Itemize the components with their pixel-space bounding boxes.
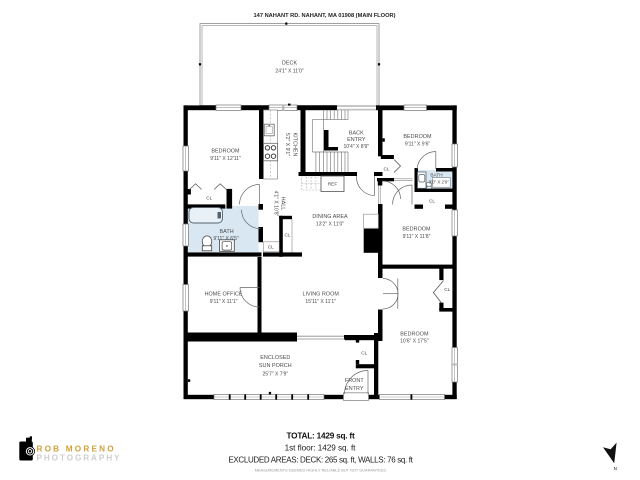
- svg-text:3'0" X 2'9": 3'0" X 2'9": [429, 180, 449, 185]
- svg-text:TOTAL: 1429 sq. ft: TOTAL: 1429 sq. ft: [287, 432, 355, 441]
- svg-text:REF: REF: [328, 182, 338, 188]
- svg-text:BACK: BACK: [349, 130, 364, 136]
- svg-text:9'11" X 12'11": 9'11" X 12'11": [210, 156, 241, 162]
- svg-text:ENCLOSED: ENCLOSED: [260, 355, 290, 361]
- svg-text:CL: CL: [429, 199, 435, 204]
- svg-text:LIVING ROOM: LIVING ROOM: [302, 292, 339, 298]
- svg-text:KITCHEN: KITCHEN: [292, 132, 298, 156]
- svg-text:BATH: BATH: [220, 229, 234, 235]
- svg-text:9'11" X 9'6": 9'11" X 9'6": [405, 141, 431, 147]
- svg-text:HALL: HALL: [280, 197, 286, 211]
- svg-text:BEDROOM: BEDROOM: [400, 331, 429, 337]
- svg-text:9'11" X 6'5": 9'11" X 6'5": [213, 236, 239, 242]
- svg-text:PHOTOGRAPHY: PHOTOGRAPHY: [37, 454, 122, 463]
- svg-text:9'11" X 11'8": 9'11" X 11'8": [403, 234, 431, 240]
- svg-text:ENTRY: ENTRY: [345, 386, 364, 392]
- svg-text:EXCLUDED AREAS: DECK: 265 sq.: EXCLUDED AREAS: DECK: 265 sq. ft, WALLS:…: [228, 456, 413, 465]
- svg-text:ROB MORENO: ROB MORENO: [37, 445, 116, 454]
- svg-text:25'7" X 7'9": 25'7" X 7'9": [262, 371, 288, 377]
- svg-text:10'6" X 17'5": 10'6" X 17'5": [400, 338, 429, 344]
- svg-text:N: N: [614, 466, 617, 471]
- svg-text:CL: CL: [268, 245, 274, 250]
- svg-text:10'4" X 8'9": 10'4" X 8'9": [343, 144, 369, 150]
- svg-text:BEDROOM: BEDROOM: [211, 149, 240, 155]
- svg-text:CL: CL: [361, 350, 367, 355]
- svg-text:MEASUREMENTS DEEMED HIGHLY REL: MEASUREMENTS DEEMED HIGHLY RELIABLE BUT …: [255, 468, 387, 473]
- svg-text:15'11" X 11'1": 15'11" X 11'1": [305, 299, 336, 305]
- svg-text:24'1" X 11'0": 24'1" X 11'0": [275, 69, 303, 75]
- svg-text:9'11" X 11'1": 9'11" X 11'1": [210, 299, 238, 305]
- svg-text:FRONT: FRONT: [345, 378, 364, 384]
- svg-text:BEDROOM: BEDROOM: [402, 227, 431, 233]
- svg-text:BATH: BATH: [430, 173, 442, 178]
- svg-text:SUN PORCH: SUN PORCH: [259, 363, 292, 369]
- svg-text:5'2" X 9'1": 5'2" X 9'1": [284, 133, 290, 156]
- svg-text:DECK: DECK: [282, 61, 298, 67]
- svg-text:HOME OFFICE: HOME OFFICE: [205, 292, 243, 298]
- svg-text:1st floor: 1429 sq. ft: 1st floor: 1429 sq. ft: [285, 444, 357, 453]
- svg-text:ENTRY: ENTRY: [347, 137, 366, 143]
- svg-text:CL: CL: [444, 287, 450, 292]
- svg-text:CL: CL: [384, 167, 390, 172]
- svg-text:147 NAHANT RD. NAHANT, MA 0190: 147 NAHANT RD. NAHANT, MA 01908 (MAIN FL…: [254, 13, 396, 19]
- svg-text:BEDROOM: BEDROOM: [403, 134, 432, 140]
- svg-text:CL: CL: [285, 232, 291, 237]
- svg-text:DINING AREA: DINING AREA: [312, 214, 348, 220]
- svg-text:4'1" X 10'8": 4'1" X 10'8": [273, 191, 279, 217]
- svg-text:CL: CL: [206, 196, 212, 201]
- svg-text:13'2" X 11'0": 13'2" X 11'0": [316, 221, 344, 227]
